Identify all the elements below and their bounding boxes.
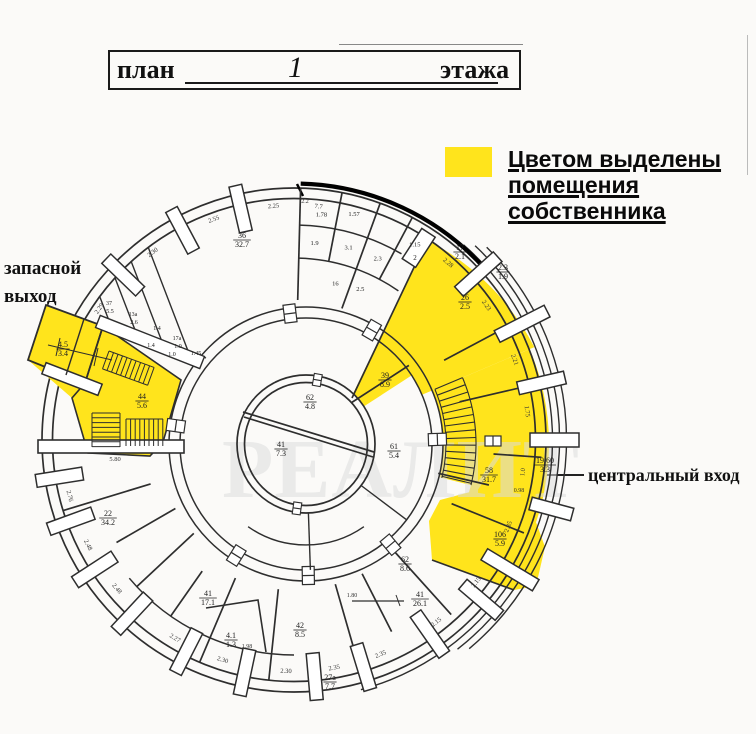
svg-text:2.48: 2.48 [82, 538, 93, 551]
svg-text:5.5: 5.5 [106, 309, 114, 315]
svg-text:61: 61 [390, 442, 398, 451]
svg-text:3.4: 3.4 [58, 349, 68, 358]
svg-text:26.1: 26.1 [413, 599, 427, 608]
svg-text:5.4: 5.4 [389, 451, 399, 460]
svg-text:1.98: 1.98 [242, 644, 253, 650]
svg-text:2.3: 2.3 [374, 256, 382, 263]
svg-text:1.4: 1.4 [147, 343, 155, 349]
svg-text:106: 106 [494, 530, 506, 539]
svg-text:34.2: 34.2 [101, 518, 115, 527]
svg-text:44: 44 [138, 392, 146, 401]
svg-text:2: 2 [413, 254, 417, 262]
svg-text:3.1: 3.1 [345, 245, 353, 252]
svg-text:36: 36 [238, 231, 246, 240]
svg-text:2.3: 2.3 [498, 263, 508, 272]
svg-text:7.7: 7.7 [314, 203, 324, 211]
svg-text:2.5: 2.5 [356, 286, 364, 293]
svg-text:37: 37 [106, 301, 112, 307]
svg-text:2.76: 2.76 [65, 490, 75, 503]
svg-text:2.35: 2.35 [328, 664, 340, 673]
svg-text:4.8: 4.8 [305, 402, 315, 411]
svg-text:5.9: 5.9 [495, 539, 505, 548]
svg-text:2.30: 2.30 [280, 668, 292, 675]
svg-text:7.7: 7.7 [325, 682, 335, 691]
svg-text:32.7: 32.7 [235, 240, 249, 249]
svg-text:7.3: 7.3 [276, 449, 286, 458]
svg-text:8.5: 8.5 [295, 630, 305, 639]
svg-text:5.6: 5.6 [137, 401, 147, 410]
svg-text:19.60: 19.60 [536, 456, 554, 465]
svg-text:1.0: 1.0 [519, 468, 527, 477]
svg-text:62: 62 [401, 555, 409, 564]
svg-text:16: 16 [332, 281, 339, 288]
svg-text:62: 62 [306, 393, 314, 402]
svg-text:2.25: 2.25 [268, 202, 280, 210]
svg-text:2.30: 2.30 [216, 655, 229, 665]
svg-text:1.3: 1.3 [226, 640, 236, 649]
svg-text:41: 41 [416, 590, 424, 599]
svg-text:17: 17 [456, 243, 464, 252]
svg-text:4.5: 4.5 [58, 340, 68, 349]
svg-text:3.3: 3.3 [540, 465, 550, 474]
svg-text:2.2: 2.2 [301, 199, 309, 205]
svg-text:13а: 13а [129, 312, 138, 318]
svg-text:27а: 27а [324, 673, 336, 682]
svg-text:1.75: 1.75 [523, 405, 531, 417]
svg-text:1.78: 1.78 [316, 212, 327, 219]
svg-text:2.48: 2.48 [110, 582, 123, 595]
svg-text:2.15: 2.15 [430, 616, 443, 629]
svg-text:17.1: 17.1 [201, 598, 215, 607]
svg-text:2.35: 2.35 [374, 649, 387, 660]
svg-text:2.6: 2.6 [130, 320, 138, 326]
svg-text:4.1: 4.1 [226, 631, 236, 640]
svg-text:41: 41 [204, 589, 212, 598]
svg-text:2.1: 2.1 [455, 252, 465, 261]
svg-text:1.0: 1.0 [168, 352, 176, 358]
svg-text:22: 22 [104, 509, 112, 518]
svg-text:42: 42 [296, 621, 304, 630]
svg-text:5.80: 5.80 [109, 456, 120, 463]
svg-text:2.5: 2.5 [460, 302, 470, 311]
svg-text:17а: 17а [173, 336, 182, 342]
svg-text:0.98: 0.98 [514, 488, 525, 494]
svg-text:41: 41 [277, 440, 285, 449]
svg-text:1.80: 1.80 [347, 593, 358, 599]
svg-text:26: 26 [461, 293, 469, 302]
svg-text:1.57: 1.57 [348, 211, 360, 218]
svg-text:1.0: 1.0 [174, 344, 182, 350]
svg-text:58: 58 [485, 466, 493, 475]
svg-text:1.45: 1.45 [191, 351, 202, 357]
svg-text:2.27: 2.27 [168, 632, 182, 644]
svg-text:8.9: 8.9 [380, 380, 390, 389]
svg-text:39: 39 [381, 371, 389, 380]
svg-text:1.9: 1.9 [498, 272, 508, 281]
svg-text:1.9: 1.9 [310, 240, 318, 247]
svg-text:1.15: 1.15 [409, 242, 420, 249]
svg-text:2.55: 2.55 [207, 214, 220, 224]
svg-text:1.4: 1.4 [153, 326, 161, 332]
svg-text:8.6: 8.6 [400, 564, 410, 573]
svg-text:31.7: 31.7 [482, 475, 496, 484]
